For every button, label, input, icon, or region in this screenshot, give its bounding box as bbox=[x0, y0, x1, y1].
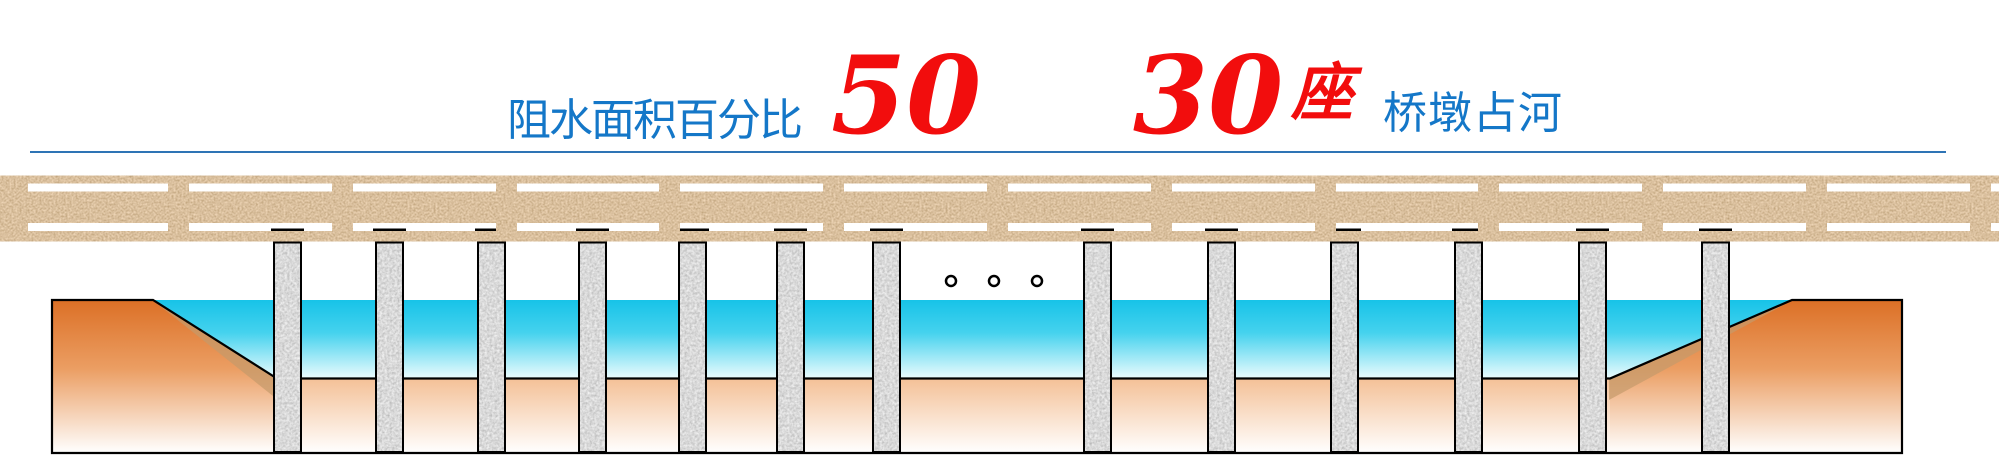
deck-post bbox=[168, 184, 189, 232]
deck-post bbox=[332, 184, 353, 232]
deck-post bbox=[823, 184, 844, 232]
deck-bottom-rail bbox=[0, 231, 1999, 242]
deck-post bbox=[1806, 184, 1827, 232]
pier-shaft bbox=[1331, 243, 1358, 453]
pier-shaft bbox=[274, 243, 301, 453]
ellipsis-dot bbox=[946, 276, 956, 286]
deck-post bbox=[659, 184, 680, 232]
deck-post bbox=[1478, 184, 1499, 232]
bridge-deck bbox=[0, 176, 1999, 242]
deck-top-rail bbox=[0, 176, 1999, 184]
deck-post bbox=[1315, 184, 1336, 232]
bridge-pier-diagram: 阻水面积百分比 50 30 座 桥墩占河 bbox=[0, 0, 1999, 455]
pier-shaft bbox=[777, 243, 804, 453]
deck-post bbox=[1642, 184, 1663, 232]
pier-shaft bbox=[679, 243, 706, 453]
deck-post bbox=[496, 184, 517, 232]
bridge-scene bbox=[0, 0, 1999, 455]
pier-shaft bbox=[1702, 243, 1729, 453]
deck-post bbox=[987, 184, 1008, 232]
pier-shaft bbox=[1084, 243, 1111, 453]
pier-shaft bbox=[478, 243, 505, 453]
ellipsis-dot bbox=[1032, 276, 1042, 286]
pier-shaft bbox=[376, 243, 403, 453]
ellipsis-dots bbox=[946, 276, 1042, 286]
pier-shaft bbox=[1455, 243, 1482, 453]
river-water bbox=[100, 300, 1900, 378]
deck-post bbox=[1970, 184, 1991, 232]
river-bed bbox=[277, 378, 1610, 453]
pier-shaft bbox=[1208, 243, 1235, 453]
deck-left-stub-post bbox=[0, 184, 28, 232]
ellipsis-dot bbox=[989, 276, 999, 286]
pier-shaft bbox=[579, 243, 606, 453]
pier-shaft bbox=[1579, 243, 1606, 453]
deck-post bbox=[1151, 184, 1172, 232]
pier-shaft bbox=[873, 243, 900, 453]
